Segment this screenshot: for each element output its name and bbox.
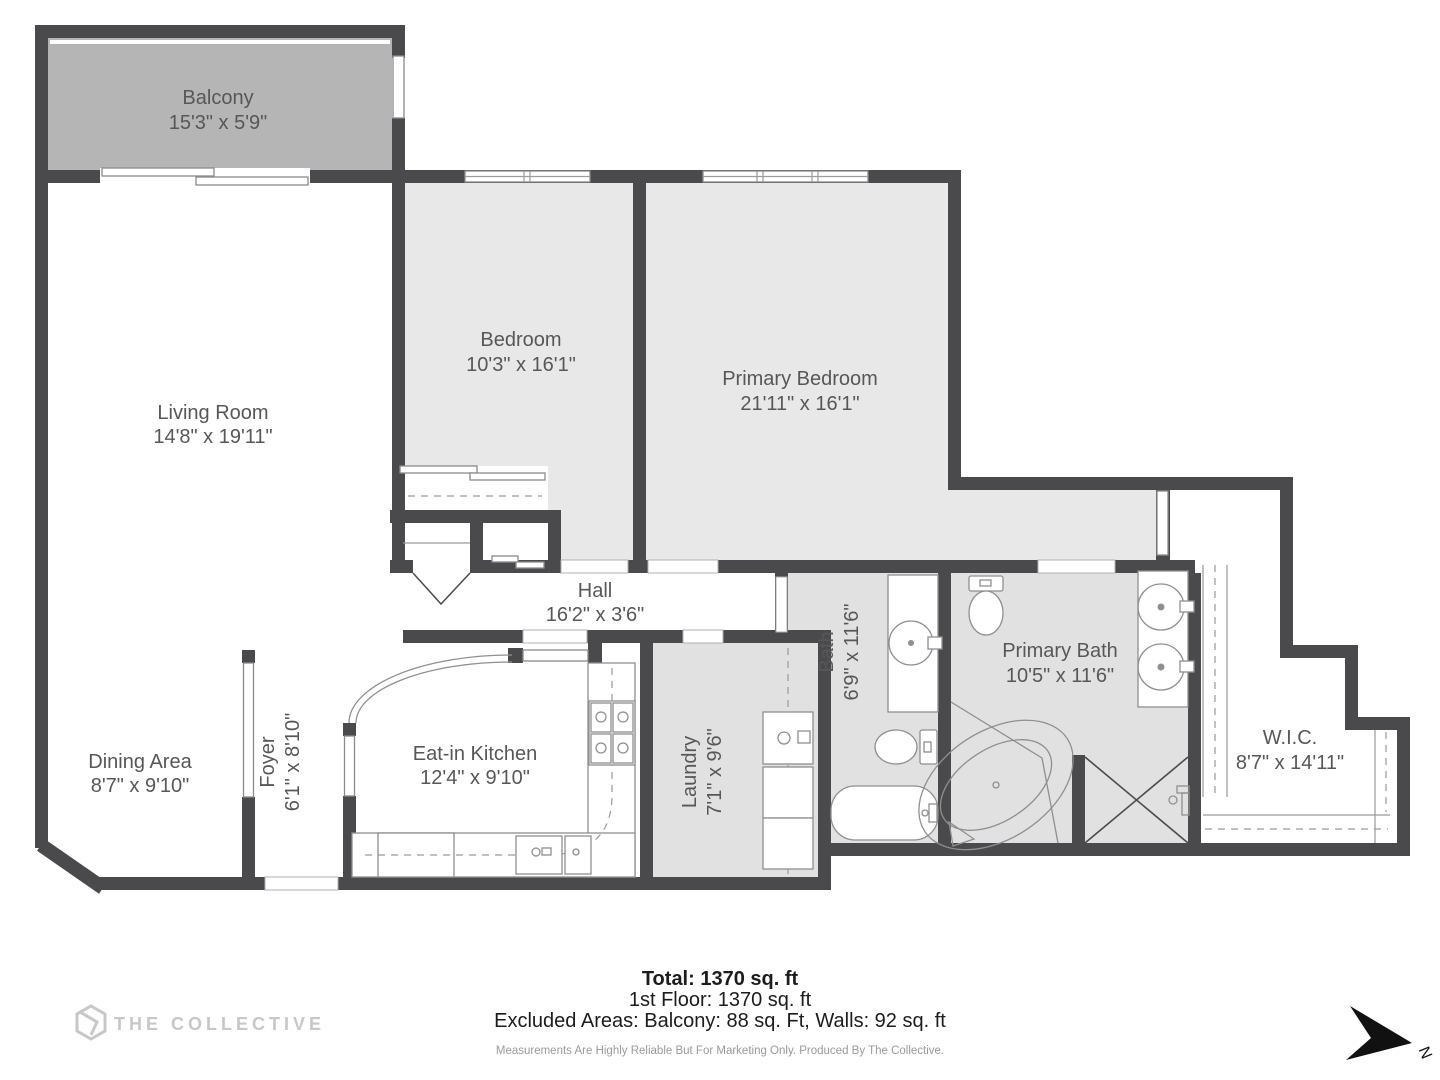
north-arrow-icon bbox=[1346, 1006, 1412, 1060]
kitchen-arch bbox=[356, 662, 512, 723]
closet-sliding-door bbox=[516, 562, 544, 568]
room-dims-dining: 8'7" x 9'10" bbox=[91, 775, 190, 797]
faucet-icon bbox=[1180, 601, 1194, 612]
closet-door-opening bbox=[413, 560, 470, 573]
floor-plan: Balcony 15'3" x 5'9" Living Room 14'8" x… bbox=[0, 0, 1440, 1080]
logo-text: THE COLLECTIVE bbox=[114, 1014, 325, 1034]
room-dims-wic: 8'7" x 14'11" bbox=[1236, 752, 1344, 774]
sliding-door-panel bbox=[102, 168, 214, 176]
kitchen-pass-through bbox=[523, 650, 588, 661]
room-label-living-room: Living Room bbox=[157, 402, 268, 424]
north-indicator: N bbox=[1346, 1006, 1435, 1061]
laundry-sink bbox=[763, 712, 813, 764]
room-dims-balcony: 15'3" x 5'9" bbox=[169, 112, 268, 134]
room-dims-foyer: 6'1" x 8'10" bbox=[282, 713, 304, 812]
balcony-railing bbox=[50, 40, 390, 44]
room-dims-laundry: 7'1" x 9'6" bbox=[704, 728, 726, 815]
bedroom-door-opening bbox=[561, 560, 628, 573]
laundry-door-opening bbox=[683, 630, 723, 643]
balcony-window bbox=[393, 56, 404, 118]
total-area-text: Total: 1370 sq. ft bbox=[642, 968, 799, 990]
kitchen-entry-opening bbox=[523, 630, 587, 643]
faucet-icon bbox=[928, 637, 942, 649]
washer bbox=[763, 767, 813, 818]
sliding-door-panel bbox=[196, 177, 308, 185]
room-label-primary-bedroom: Primary Bedroom bbox=[722, 368, 878, 390]
room-label-balcony: Balcony bbox=[182, 87, 253, 109]
summary-block: Total: 1370 sq. ft 1st Floor: 1370 sq. f… bbox=[494, 968, 946, 1057]
hall-bath-door-opening bbox=[776, 577, 787, 632]
closet-sliding-door bbox=[492, 556, 518, 562]
foyer-half-wall bbox=[244, 663, 254, 797]
faucet-icon bbox=[1180, 661, 1194, 672]
room-label-primary-bath: Primary Bath bbox=[1002, 640, 1118, 662]
disclaimer-text: Measurements Are Highly Reliable But For… bbox=[496, 1045, 944, 1057]
refrigerator bbox=[378, 833, 454, 877]
toilet-tank bbox=[969, 576, 1003, 591]
stove bbox=[589, 701, 635, 765]
room-label-dining: Dining Area bbox=[88, 751, 192, 773]
room-label-laundry: Laundry bbox=[679, 736, 701, 808]
room-label-wic: W.I.C. bbox=[1263, 727, 1317, 749]
primary-bath-door-opening bbox=[1038, 560, 1115, 573]
room-label-bedroom: Bedroom bbox=[480, 329, 561, 351]
dryer bbox=[763, 818, 813, 869]
room-dims-kitchen: 12'4" x 9'10" bbox=[420, 767, 530, 789]
room-dims-primary-bath: 10'5" x 11'6" bbox=[1006, 665, 1114, 687]
kitchen-arch bbox=[349, 655, 512, 723]
excluded-area-text: Excluded Areas: Balcony: 88 sq. Ft, Wall… bbox=[494, 1010, 946, 1032]
toilet-bowl bbox=[969, 591, 1003, 635]
room-label-hall: Hall bbox=[578, 580, 612, 602]
bifold-door-symbol bbox=[413, 573, 470, 604]
floor-plan-page: Balcony 15'3" x 5'9" Living Room 14'8" x… bbox=[0, 0, 1440, 1080]
room-dims-living-room: 14'8" x 19'11" bbox=[153, 426, 272, 448]
room-label-kitchen: Eat-in Kitchen bbox=[413, 743, 538, 765]
floor-area-text: 1st Floor: 1370 sq. ft bbox=[629, 989, 812, 1011]
closet-sliding-door bbox=[400, 466, 477, 473]
wic-door-opening bbox=[1157, 491, 1168, 555]
room-dims-hall: 16'2" x 3'6" bbox=[546, 604, 645, 626]
primary-vanity bbox=[1138, 571, 1188, 707]
room-dims-bath: 6'9" x 11'6" bbox=[841, 603, 863, 700]
foyer-half-wall bbox=[345, 736, 355, 796]
room-label-bath: Bath bbox=[816, 631, 838, 672]
closet-sliding-door bbox=[470, 473, 545, 480]
room-label-foyer: Foyer bbox=[257, 736, 279, 787]
primary-bedroom-door-opening bbox=[648, 560, 718, 573]
north-label: N bbox=[1415, 1044, 1435, 1061]
logo-icon bbox=[77, 1006, 105, 1039]
entry-door-opening bbox=[265, 877, 338, 890]
toilet-bowl bbox=[875, 730, 917, 764]
room-dims-primary-bedroom: 21'11" x 16'1" bbox=[740, 393, 859, 415]
toilet-tank bbox=[920, 730, 937, 764]
logo: THE COLLECTIVE bbox=[77, 1006, 325, 1039]
room-dims-bedroom: 10'3" x 16'1" bbox=[466, 354, 576, 376]
